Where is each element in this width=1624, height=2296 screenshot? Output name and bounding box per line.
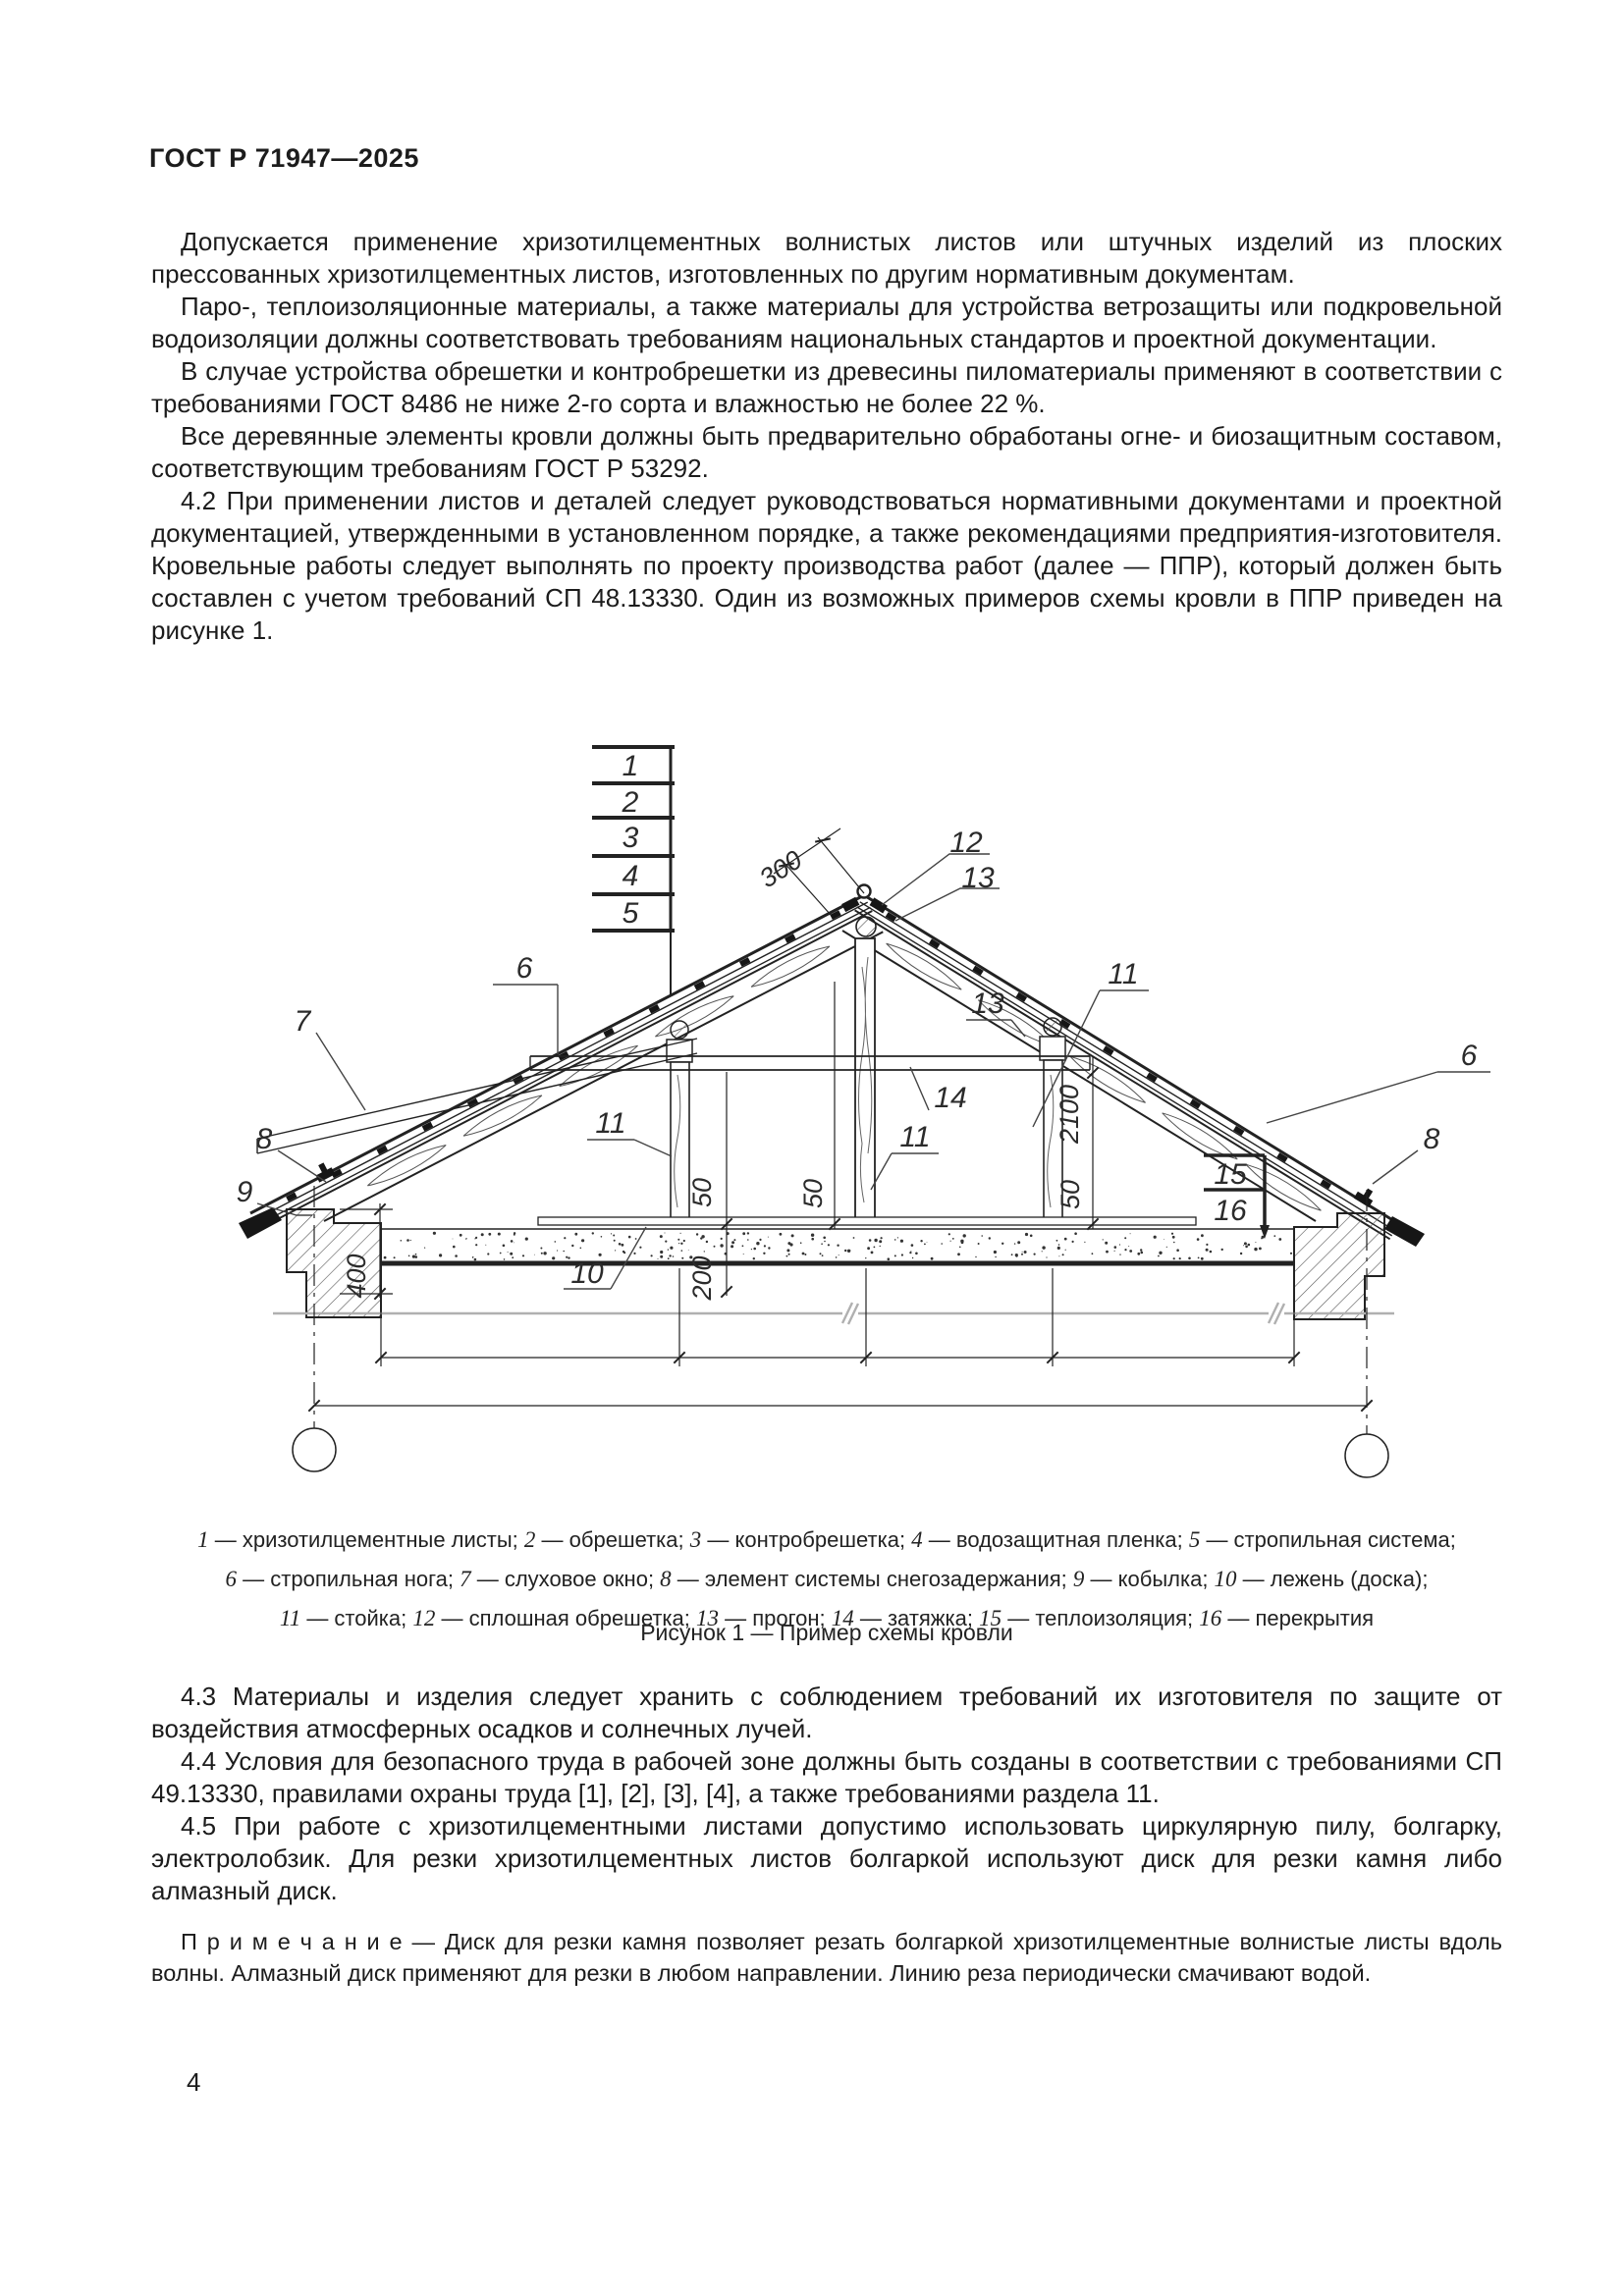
- dim-2100: 2100: [1055, 1085, 1084, 1145]
- break-line: [273, 1303, 1394, 1324]
- callout-6-left: 6: [516, 952, 533, 985]
- callout-2: 2: [622, 786, 639, 819]
- callout-8-left: 8: [256, 1123, 273, 1155]
- callout-11-left: 11: [595, 1107, 625, 1140]
- callout-14: 14: [934, 1082, 966, 1114]
- callout-1: 1: [623, 750, 639, 782]
- callout-9: 9: [237, 1176, 253, 1208]
- page-number: 4: [187, 2067, 200, 2098]
- dim-50-a: 50: [687, 1178, 717, 1207]
- document-page: ГОСТ Р 71947—2025 Допускается применение…: [0, 0, 1624, 2296]
- dim-50-c: 50: [1056, 1180, 1085, 1209]
- callout-16: 16: [1214, 1195, 1247, 1227]
- dim-400: 400: [342, 1254, 371, 1298]
- callout-8-right: 8: [1424, 1123, 1440, 1155]
- dim-300: 300: [754, 845, 807, 894]
- callout-13-mid: 13: [971, 988, 1004, 1020]
- legend-stack-box: 1 2 3 4 5: [592, 747, 675, 995]
- dim-200: 200: [687, 1255, 717, 1301]
- callout-6-right: 6: [1461, 1040, 1478, 1072]
- figure-caption: Рисунок 1 — Пример схемы кровли: [151, 1620, 1502, 1646]
- legend-line: 1 — хризотилцементные листы; 2 — обрешет…: [151, 1521, 1502, 1560]
- note-paragraph: П р и м е ч а н и е — Диск для резки кам…: [151, 1926, 1502, 1989]
- roof-layers-decor: [286, 910, 1331, 1210]
- callout-13-top: 13: [961, 862, 995, 894]
- callout-11-right: 11: [1108, 958, 1138, 990]
- callout-12: 12: [949, 827, 983, 859]
- callout-3: 3: [623, 822, 639, 854]
- callout-7: 7: [295, 1005, 312, 1038]
- paragraph: 4.4 Условия для безопасного труда в рабо…: [151, 1745, 1502, 1810]
- callout-15: 15: [1214, 1158, 1247, 1191]
- paragraph: 4.3 Материалы и изделия следует хранить …: [151, 1681, 1502, 1745]
- dim-50-b: 50: [798, 1179, 828, 1208]
- slab-speckles: [384, 1232, 1292, 1261]
- callout-4: 4: [623, 860, 639, 892]
- snow-guard-icon: [1354, 1185, 1378, 1207]
- paragraph: 4.5 При работе с хризотилцементными лист…: [151, 1810, 1502, 1907]
- callout-10: 10: [570, 1257, 604, 1290]
- callout-11-center: 11: [899, 1121, 930, 1153]
- callout-5: 5: [623, 897, 639, 930]
- body-text-bottom: 4.3 Материалы и изделия следует хранить …: [151, 1681, 1502, 1989]
- legend-line: 6 — стропильная нога; 7 — слуховое окно;…: [151, 1560, 1502, 1599]
- tie-beam: [530, 1056, 1090, 1070]
